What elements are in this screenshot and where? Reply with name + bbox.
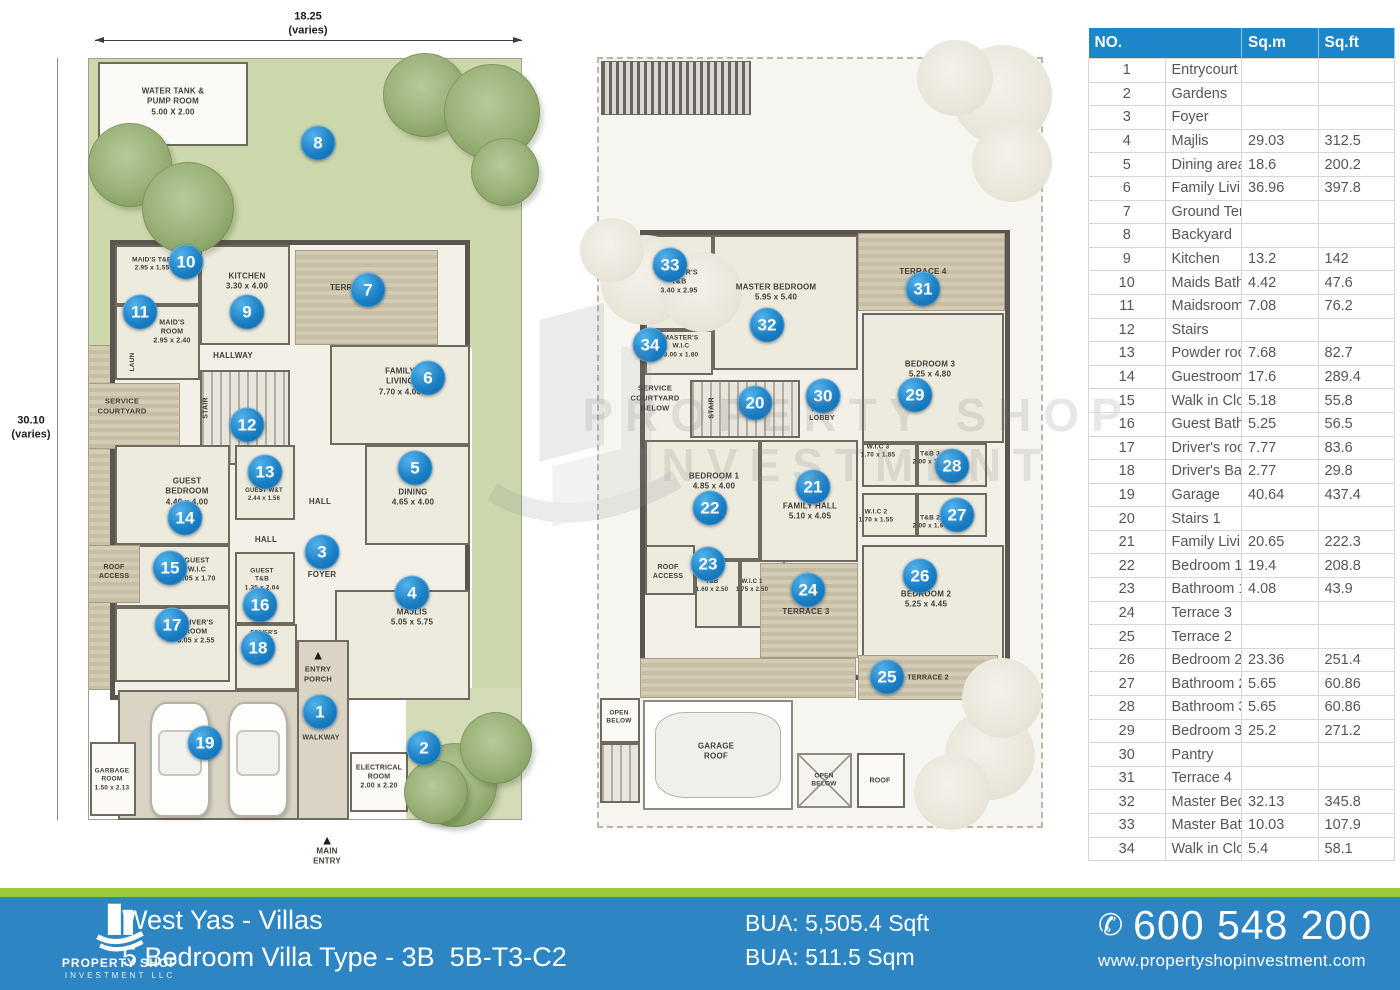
table-cell: Bedroom 3 (1165, 719, 1242, 743)
table-cell: Kitchen (1165, 247, 1242, 271)
room-label: OPEN BELOW (811, 773, 836, 790)
plan-marker-2: 2 (407, 731, 442, 766)
table-cell: 36.96 (1242, 176, 1319, 200)
table-cell: 6 (1089, 176, 1166, 200)
table-cell: Powder room (1165, 342, 1242, 366)
table-cell: 76.2 (1318, 294, 1395, 318)
table-row: 20Stairs 1 (1089, 507, 1395, 531)
ghost-tree-icon (962, 658, 1042, 738)
table-cell: 20 (1089, 507, 1166, 531)
plan-marker-1: 1 (303, 695, 338, 730)
table-row: 23Bathroom 14.0843.9 (1089, 578, 1395, 602)
room-label: LAUN (129, 353, 137, 372)
table-cell (1242, 507, 1319, 531)
table-cell: Family Living (1165, 176, 1242, 200)
table-cell (1318, 59, 1395, 83)
plan-marker-6: 6 (411, 361, 446, 396)
table-cell: 25.2 (1242, 719, 1319, 743)
table-cell: 27 (1089, 672, 1166, 696)
table-cell (1318, 743, 1395, 767)
table-cell: 8 (1089, 224, 1166, 248)
table-row: 21Family Living20.65222.3 (1089, 530, 1395, 554)
room-label: GARBAGE ROOM 1.50 x 2.13 (95, 767, 130, 792)
table-cell: 56.5 (1318, 412, 1395, 436)
table-cell (1242, 106, 1319, 130)
table-cell: 29 (1089, 719, 1166, 743)
table-cell: 9 (1089, 247, 1166, 271)
dimension-left-label: 30.10 (varies) (11, 414, 50, 442)
watermark-text-1: PROPERTY SHOP (582, 388, 1133, 442)
plan-marker-14: 14 (168, 501, 203, 536)
table-cell: 32.13 (1242, 790, 1319, 814)
room-label: GARAGE ROOF (698, 742, 734, 763)
room-label: TERRACE 2 (907, 673, 948, 682)
dimension-line-left (57, 58, 58, 820)
table-cell: 25 (1089, 625, 1166, 649)
table-cell: 200.2 (1318, 153, 1395, 177)
website-url: www.propertyshopinvestment.com (1098, 951, 1373, 971)
table-cell: 12 (1089, 318, 1166, 342)
table-cell (1318, 766, 1395, 790)
room-label: DINING 4.65 x 4.00 (392, 488, 434, 509)
table-cell: 4.42 (1242, 271, 1319, 295)
table-cell: 47.6 (1318, 271, 1395, 295)
table-cell: Entrycourt (1165, 59, 1242, 83)
room-label: T&B 1.60 x 2.50 (696, 579, 728, 595)
car-icon (228, 702, 288, 817)
plan-marker-17: 17 (155, 608, 190, 643)
table-cell: Maids Bathroom (1165, 271, 1242, 295)
table-cell: 2 (1089, 82, 1166, 106)
table-cell: 17 (1089, 436, 1166, 460)
table-cell: Ground Terrace (1165, 200, 1242, 224)
plan-marker-15: 15 (153, 551, 188, 586)
table-row: 3Foyer (1089, 106, 1395, 130)
room-label: ELECTRICAL ROOM 2.00 x 2.20 (356, 763, 402, 790)
table-cell (1318, 507, 1395, 531)
table-cell: 10 (1089, 271, 1166, 295)
table-cell: Pantry (1165, 743, 1242, 767)
plan-marker-24: 24 (791, 573, 826, 608)
room-label: FAMILY HALL 5.10 x 4.05 (783, 502, 837, 523)
plan-marker-23: 23 (691, 547, 726, 582)
table-cell (1242, 59, 1319, 83)
table-row: 17Driver's room7.7783.6 (1089, 436, 1395, 460)
room-label: BEDROOM 2 5.25 x 4.45 (901, 590, 951, 611)
plan-marker-18: 18 (241, 631, 276, 666)
room-label: ROOF (869, 776, 890, 785)
table-row: 10Maids Bathroom4.4247.6 (1089, 271, 1395, 295)
plan-marker-3: 3 (305, 535, 340, 570)
entry-arrow-icon: ▲ (312, 648, 325, 663)
table-cell: 22 (1089, 554, 1166, 578)
table-row: 2Gardens (1089, 82, 1395, 106)
ghost-tree-icon (972, 122, 1052, 202)
table-row: 31Terrace 4 (1089, 766, 1395, 790)
table-row: 29Bedroom 325.2271.2 (1089, 719, 1395, 743)
table-row: 5Dining area18.6200.2 (1089, 153, 1395, 177)
table-cell: Family Living (1165, 530, 1242, 554)
table-cell: 60.86 (1318, 672, 1395, 696)
table-cell: Dining area (1165, 153, 1242, 177)
room-label: TERRACE 3 (782, 607, 829, 617)
table-cell: 13.2 (1242, 247, 1319, 271)
table-cell (1242, 200, 1319, 224)
table-cell: 107.9 (1318, 814, 1395, 838)
table-cell: 24 (1089, 601, 1166, 625)
flyer-canvas: ▲▲WATER TANK & PUMP ROOM 5.00 X 2.00TERR… (0, 0, 1400, 990)
table-cell: 19.4 (1242, 554, 1319, 578)
table-header-sqft: Sq.ft (1318, 28, 1395, 59)
table-cell: 83.6 (1318, 436, 1395, 460)
table-cell (1318, 318, 1395, 342)
deck-strip-bottom (640, 658, 856, 698)
table-cell: 437.4 (1318, 483, 1395, 507)
table-row: 27Bathroom 25.6560.86 (1089, 672, 1395, 696)
table-cell: 397.8 (1318, 176, 1395, 200)
table-cell (1318, 106, 1395, 130)
table-cell: 7.68 (1242, 342, 1319, 366)
table-cell: 26 (1089, 648, 1166, 672)
table-cell: 29.03 (1242, 129, 1319, 153)
footer-bar: PROPERTY SHOP INVESTMENT LLC West Yas - … (0, 888, 1400, 990)
table-cell (1242, 318, 1319, 342)
table-cell: 3 (1089, 106, 1166, 130)
plan-marker-16: 16 (243, 588, 278, 623)
title-block: West Yas - Villas 5 Bedroom Villa Type -… (122, 905, 567, 973)
footer-green-strip (0, 888, 1400, 897)
table-cell: Foyer (1165, 106, 1242, 130)
table-row: 22Bedroom 119.4208.8 (1089, 554, 1395, 578)
room-label: WALKWAY (302, 733, 339, 742)
table-cell (1242, 601, 1319, 625)
plan-marker-4: 4 (395, 576, 430, 611)
table-row: 4Majlis29.03312.5 (1089, 129, 1395, 153)
room-label: OPEN BELOW (606, 710, 631, 727)
plan-marker-9: 9 (230, 295, 265, 330)
table-cell: 251.4 (1318, 648, 1395, 672)
table-cell: 11 (1089, 294, 1166, 318)
table-row: 25Terrace 2 (1089, 625, 1395, 649)
table-cell: 4 (1089, 129, 1166, 153)
table-cell: 7.08 (1242, 294, 1319, 318)
table-row: 33Master Bathroom10.03107.9 (1089, 814, 1395, 838)
table-row: 9Kitchen13.2142 (1089, 247, 1395, 271)
table-cell: 5.18 (1242, 389, 1319, 413)
table-cell: Driver's Bathroom (1165, 460, 1242, 484)
table-row: 18Driver's Bathroom2.7729.8 (1089, 460, 1395, 484)
table-cell: 28 (1089, 696, 1166, 720)
plan-marker-22: 22 (693, 491, 728, 526)
table-cell: Terrace 3 (1165, 601, 1242, 625)
table-cell: Maidsroom (1165, 294, 1242, 318)
table-cell: 208.8 (1318, 554, 1395, 578)
table-cell: 31 (1089, 766, 1166, 790)
room-label: STAIR (201, 397, 210, 418)
table-cell: 18.6 (1242, 153, 1319, 177)
table-cell (1242, 625, 1319, 649)
table-row: 13Powder room7.6882.7 (1089, 342, 1395, 366)
table-cell: Garage (1165, 483, 1242, 507)
room-label: SERVICE COURTYARD (97, 396, 146, 416)
pergola-hatch (601, 61, 751, 115)
table-header-no: NO. (1089, 28, 1242, 59)
table-row: 14Guestroom17.6289.4 (1089, 365, 1395, 389)
room-label: MAJLIS 5.05 x 5.75 (391, 608, 433, 629)
area-table: NO. Sq.m Sq.ft 1Entrycourt2Gardens3Foyer… (1088, 28, 1395, 861)
table-cell: 345.8 (1318, 790, 1395, 814)
table-row: 24Terrace 3 (1089, 601, 1395, 625)
tree-icon (142, 162, 234, 254)
table-cell: Master Bathroom (1165, 814, 1242, 838)
table-cell (1242, 766, 1319, 790)
plan-marker-10: 10 (169, 245, 204, 280)
table-cell: 20.65 (1242, 530, 1319, 554)
room-label: HALL (255, 535, 277, 545)
dimension-line-top (95, 40, 522, 41)
table-cell: 5.4 (1242, 837, 1319, 861)
table-cell: Guestroom (1165, 365, 1242, 389)
plan-marker-19: 19 (188, 726, 223, 761)
plan-marker-7: 7 (351, 273, 386, 308)
table-cell: 1 (1089, 59, 1166, 83)
table-cell: 30 (1089, 743, 1166, 767)
table-cell: 289.4 (1318, 365, 1395, 389)
table-cell: 23 (1089, 578, 1166, 602)
table-cell: 222.3 (1318, 530, 1395, 554)
dimension-top-label: 18.25 (varies) (288, 10, 327, 38)
table-cell: Terrace 4 (1165, 766, 1242, 790)
phone-icon: ✆ (1098, 911, 1123, 941)
table-cell: Gardens (1165, 82, 1242, 106)
room-label: W.I.C 2 1.70 x 1.55 (859, 509, 894, 526)
room-label: WATER TANK & PUMP ROOM 5.00 X 2.00 (142, 86, 205, 117)
room-label: HALLWAY (213, 351, 253, 361)
table-cell: Bathroom 1 (1165, 578, 1242, 602)
table-header-sqm: Sq.m (1242, 28, 1319, 59)
tree-icon (404, 760, 468, 824)
table-cell (1242, 743, 1319, 767)
plan-marker-25: 25 (870, 660, 905, 695)
table-cell: 23.36 (1242, 648, 1319, 672)
table-cell: 32 (1089, 790, 1166, 814)
table-row: 30Pantry (1089, 743, 1395, 767)
table-cell (1318, 200, 1395, 224)
table-cell: 60.86 (1318, 696, 1395, 720)
table-cell: 5.65 (1242, 696, 1319, 720)
table-cell (1318, 224, 1395, 248)
plan-marker-13: 13 (248, 455, 283, 490)
plan-marker-11: 11 (123, 295, 158, 330)
table-cell: Guest Bathroom (1165, 412, 1242, 436)
table-cell: Walk in Closet (1165, 837, 1242, 861)
plan-marker-31: 31 (906, 272, 941, 307)
plan-marker-8: 8 (301, 126, 336, 161)
phone-number: 600 548 200 (1133, 902, 1372, 949)
table-cell: 33 (1089, 814, 1166, 838)
table-cell: Driver's room (1165, 436, 1242, 460)
table-cell: 19 (1089, 483, 1166, 507)
tree-icon (471, 138, 539, 206)
table-cell: Backyard (1165, 224, 1242, 248)
room-label: MAID'S T&B 2.95 x 1.55 (132, 257, 172, 274)
table-cell: Bathroom 3 (1165, 696, 1242, 720)
table-cell: 312.5 (1318, 129, 1395, 153)
table-cell: 58.1 (1318, 837, 1395, 861)
room-label: HALL (309, 497, 331, 507)
bua-block: BUA: 5,505.4 Sqft BUA: 511.5 Sqm (745, 910, 929, 978)
table-cell: Bathroom 2 (1165, 672, 1242, 696)
table-row: 16Guest Bathroom5.2556.5 (1089, 412, 1395, 436)
table-cell: Stairs 1 (1165, 507, 1242, 531)
table-row: 6Family Living36.96397.8 (1089, 176, 1395, 200)
table-cell: 5.65 (1242, 672, 1319, 696)
tree-icon (460, 712, 532, 784)
table-row: 8Backyard (1089, 224, 1395, 248)
table-cell: 82.7 (1318, 342, 1395, 366)
table-cell: 14 (1089, 365, 1166, 389)
table-cell: 17.6 (1242, 365, 1319, 389)
table-row: 12Stairs (1089, 318, 1395, 342)
table-cell (1318, 82, 1395, 106)
table-cell: Walk in Closet (1165, 389, 1242, 413)
contact-block: ✆ 600 548 200 www.propertyshopinvestment… (1098, 902, 1373, 971)
table-cell: 18 (1089, 460, 1166, 484)
table-cell (1318, 601, 1395, 625)
room-label: ROOF ACCESS (653, 563, 683, 581)
table-cell (1318, 625, 1395, 649)
table-row: 11Maidsroom7.0876.2 (1089, 294, 1395, 318)
car-glass (236, 730, 280, 776)
ghost-tree-icon (580, 218, 644, 282)
room-label: GUEST W&T 2.44 x 1.56 (245, 488, 283, 504)
table-row: 26Bedroom 223.36251.4 (1089, 648, 1395, 672)
ghost-tree-icon (914, 754, 990, 830)
ghost-tree-icon (917, 40, 993, 116)
table-cell: 5 (1089, 153, 1166, 177)
table-cell: 55.8 (1318, 389, 1395, 413)
plan-marker-27: 27 (940, 498, 975, 533)
table-cell (1242, 224, 1319, 248)
table-cell: 34 (1089, 837, 1166, 861)
table-cell: Master Bedroom (1165, 790, 1242, 814)
villa-type-title: 5 Bedroom Villa Type - 3B 5B-T3-C2 (122, 942, 567, 973)
table-cell (1242, 82, 1319, 106)
bua-sqft: BUA: 5,505.4 Sqft (745, 910, 929, 937)
entry-arrow-icon: ▲ (321, 833, 334, 848)
table-cell: Bedroom 2 (1165, 648, 1242, 672)
project-title: West Yas - Villas (122, 905, 567, 936)
table-row: 34Walk in Closet5.458.1 (1089, 837, 1395, 861)
table-header-row: NO. Sq.m Sq.ft (1089, 28, 1395, 59)
table-cell: 271.2 (1318, 719, 1395, 743)
watermark-text-2: INVESTMENT (637, 438, 1053, 492)
table-cell: 4.08 (1242, 578, 1319, 602)
table-cell: Majlis (1165, 129, 1242, 153)
bua-sqm: BUA: 511.5 Sqm (745, 944, 929, 971)
table-row: 19Garage40.64437.4 (1089, 483, 1395, 507)
table-cell: 29.8 (1318, 460, 1395, 484)
table-cell: 13 (1089, 342, 1166, 366)
room-label: W.I.C 1 1.75 x 2.50 (736, 579, 768, 595)
room-label: MAIN ENTRY (313, 847, 341, 868)
table-cell: 142 (1318, 247, 1395, 271)
table-cell: 21 (1089, 530, 1166, 554)
table-cell: 15 (1089, 389, 1166, 413)
table-cell: 7.77 (1242, 436, 1319, 460)
room-label: MASTER BEDROOM 5.95 x 5.40 (736, 283, 817, 304)
table-cell: Terrace 2 (1165, 625, 1242, 649)
room-label: KITCHEN 3.30 x 4.00 (226, 272, 268, 293)
table-cell: 16 (1089, 412, 1166, 436)
table-row: 32Master Bedroom32.13345.8 (1089, 790, 1395, 814)
table-cell: 10.03 (1242, 814, 1319, 838)
room-label: ENTRY PORCH (304, 664, 332, 684)
table-cell: 43.9 (1318, 578, 1395, 602)
table-row: 28Bathroom 35.6560.86 (1089, 696, 1395, 720)
table-cell: 40.64 (1242, 483, 1319, 507)
room-label: MAID'S ROOM 2.95 x 2.40 (153, 318, 190, 345)
table-cell: Bedroom 1 (1165, 554, 1242, 578)
table-row: 7Ground Terrace (1089, 200, 1395, 224)
plan-marker-33: 33 (653, 248, 688, 283)
table-cell: Stairs (1165, 318, 1242, 342)
plan-marker-12: 12 (230, 408, 265, 443)
plan-marker-32: 32 (750, 308, 785, 343)
service-courtyard (88, 383, 180, 449)
table-row: 1Entrycourt (1089, 59, 1395, 83)
table-cell: 7 (1089, 200, 1166, 224)
table-row: 15Walk in Closet5.1855.8 (1089, 389, 1395, 413)
plan-marker-26: 26 (903, 559, 938, 594)
room-label: FOYER (308, 570, 337, 580)
table-cell: 2.77 (1242, 460, 1319, 484)
room-label: ROOF ACCESS (99, 563, 129, 581)
plan-marker-5: 5 (398, 451, 433, 486)
stairs-hatch-2 (600, 743, 640, 803)
table-cell: 5.25 (1242, 412, 1319, 436)
